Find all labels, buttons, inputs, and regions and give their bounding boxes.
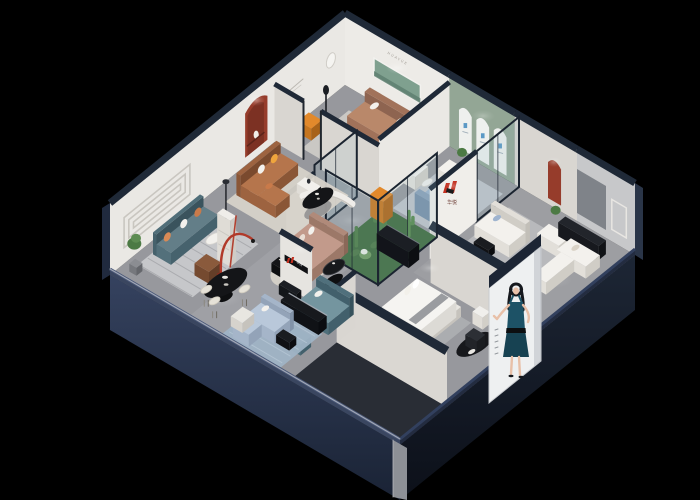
wall-spot	[420, 263, 440, 273]
table-decor-vase	[307, 179, 311, 184]
showroom-render: HUAYUE华悦华悦	[0, 0, 700, 500]
wall-spot	[444, 181, 462, 191]
caramel-sofa-back-front	[236, 173, 240, 198]
corner-plant	[131, 234, 141, 243]
poster-model-dress	[507, 302, 525, 330]
arch-logo-mark	[481, 133, 485, 138]
corner-column	[393, 440, 407, 500]
left-sofa-back-front	[153, 232, 157, 256]
left-floor-lamp-shade	[222, 179, 229, 184]
wall-spot	[386, 62, 408, 74]
wall-spot	[471, 110, 495, 122]
dining-table-bowl	[222, 276, 228, 279]
arch-room-plant	[457, 148, 467, 157]
dining-table-bowl	[224, 283, 229, 286]
teal-table-cup	[332, 262, 335, 264]
isometric-showroom-cutaway: HUAYUE华悦华悦	[0, 0, 700, 500]
left-corner-outer-wall	[102, 203, 110, 280]
teal-sofa-back-side	[349, 295, 353, 318]
wall-spot	[247, 94, 265, 106]
sculpture-lamp-head	[323, 85, 329, 95]
light-blue-sofa-back-side	[290, 311, 294, 332]
arch-logo-mark	[464, 123, 468, 128]
wall-spot	[546, 157, 562, 167]
right-corner-outer-wall	[635, 183, 643, 260]
poster-model-face	[513, 287, 519, 294]
red-lamp-bulb	[251, 239, 255, 243]
poster-model-belt	[506, 328, 526, 333]
white-sofa-back-side	[526, 221, 530, 244]
white-room-plant	[551, 206, 561, 215]
wall-spot	[291, 245, 309, 255]
display-table-decor	[315, 193, 319, 195]
brand-wall-logo-text: 华悦	[447, 199, 457, 206]
poster-model-shoe	[509, 375, 514, 377]
poster-model-skirt	[503, 330, 529, 357]
pink-sofa-back-side	[344, 232, 348, 256]
poster-model-shoe	[519, 376, 524, 378]
poster-edge-shade	[534, 246, 541, 366]
display-table-decor	[317, 198, 320, 200]
